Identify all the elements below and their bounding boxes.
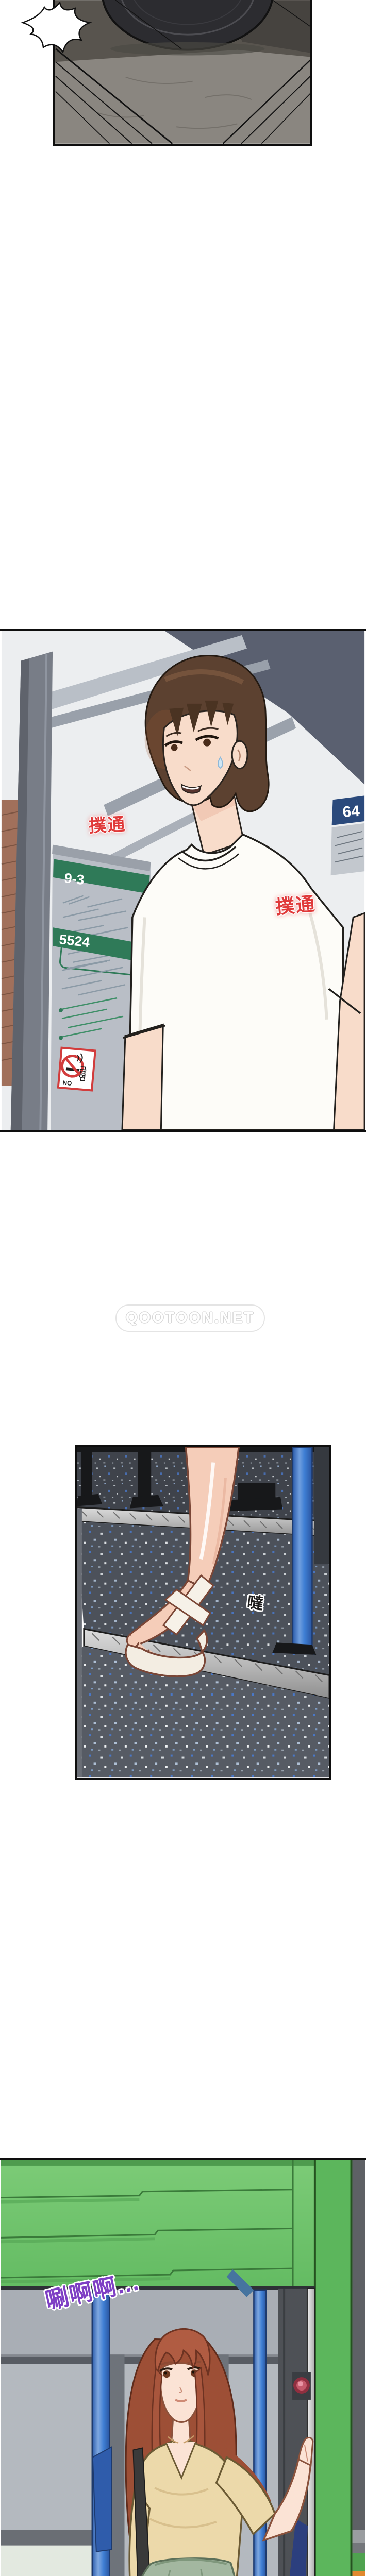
webtoon-page: 9-3 5524 [0, 0, 366, 2576]
bus-wheel-art [55, 0, 310, 144]
sfx-footstep: 噠 [246, 1589, 265, 1614]
no-smoking-en-label: NO [62, 1079, 72, 1088]
bus-door-art [0, 2160, 366, 2576]
site-watermark: QOOTOON.NET [115, 1304, 265, 1332]
route-number-top: 9-3 [63, 870, 85, 888]
panel-bus-step-foot [75, 1445, 331, 1780]
bus-exterior-strip [353, 2160, 365, 2576]
panel-bus-stop-man: 9-3 5524 [0, 629, 366, 1132]
route-number-bottom: 5524 [58, 931, 90, 950]
panel-bus-door-woman [0, 2158, 366, 2576]
blue-route-sign: 64 [331, 795, 364, 875]
stop-button [292, 2372, 311, 2400]
bus-body-green [1, 2160, 315, 2291]
impact-speech-bubble [21, 0, 93, 54]
blue-sign-number: 64 [342, 803, 361, 821]
bus-stop-art: 9-3 5524 [0, 631, 366, 1130]
no-smoking-kr-label: 금연 [77, 1065, 87, 1081]
sfx-heartbeat-right: 撲通 [274, 888, 317, 920]
bus-step-art [77, 1447, 329, 1778]
sfx-heartbeat-left: 撲通 [88, 810, 126, 837]
no-smoking-sign: 금연 NO [58, 1048, 95, 1091]
